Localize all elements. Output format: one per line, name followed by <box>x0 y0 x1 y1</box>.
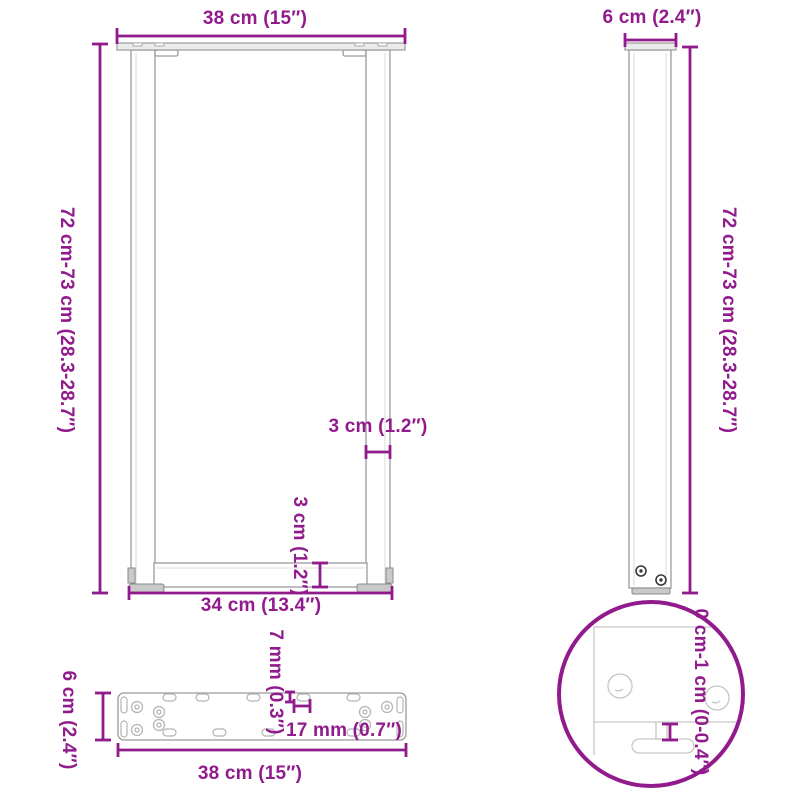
label-front-height: 72 cm-73 cm (28.3-28.7″) <box>55 207 77 433</box>
plate-notch <box>133 43 142 46</box>
plate-slot <box>397 697 403 713</box>
screw-center <box>639 569 642 572</box>
label-leg-thickness: 3 cm (1.2″) <box>329 416 428 438</box>
front-right-leg <box>366 50 390 587</box>
plate-slot <box>121 721 127 737</box>
plate-hole-center <box>157 723 161 727</box>
leg-clamp-detail <box>128 568 135 583</box>
dim-plate-depth <box>95 693 111 740</box>
front-left-foot <box>129 584 164 592</box>
plate-notch <box>355 43 364 46</box>
plate-hole-center <box>135 705 139 709</box>
label-plate-length: 38 cm (15″) <box>198 763 302 785</box>
leg-clamp-detail <box>386 568 393 583</box>
label-slot-width: 7 mm (0.3″) <box>264 629 286 734</box>
plate-slot <box>213 729 226 736</box>
side-top-plate <box>625 43 676 50</box>
dimension-diagram: 38 cm (15″) 6 cm (2.4″) 72 cm-73 cm (28.… <box>0 0 800 800</box>
plate-hole-center <box>385 705 389 709</box>
diagram-linework <box>0 0 800 800</box>
foot-detail-view <box>559 602 752 786</box>
label-crossbar-thickness: 3 cm (1.2″) <box>288 497 310 596</box>
dim-side-height <box>682 47 698 593</box>
plate-slot <box>163 729 176 736</box>
label-side-depth: 6 cm (2.4″) <box>603 7 702 29</box>
label-foot-adjust: 0 cm-1 cm (0-0.4″) <box>689 609 711 776</box>
plate-slot <box>163 694 176 701</box>
side-foot <box>632 588 670 594</box>
plate-slot <box>247 694 260 701</box>
plate-slot <box>347 694 360 701</box>
detail-magnifier-circle <box>559 602 743 786</box>
plate-hole-center <box>135 728 139 732</box>
mounting-tab <box>155 50 178 56</box>
front-crossbar <box>154 563 367 587</box>
label-front-bottom-width: 34 cm (13.4″) <box>201 595 322 617</box>
side-view-drawing <box>625 43 676 594</box>
label-plate-depth: 6 cm (2.4″) <box>57 671 79 770</box>
mounting-tab <box>343 50 366 56</box>
plate-hole-center <box>157 710 161 714</box>
plate-slot <box>121 697 127 713</box>
plate-hole-center <box>363 710 367 714</box>
plate-notch <box>378 43 387 46</box>
label-side-height: 72 cm-73 cm (28.3-28.7″) <box>717 207 739 433</box>
dim-front-top-width <box>117 28 405 44</box>
label-front-top-width: 38 cm (15″) <box>203 8 307 30</box>
screw-center <box>659 578 662 581</box>
plate-notch <box>155 43 164 46</box>
plate-slot <box>196 694 209 701</box>
plate-slot-measured <box>297 694 310 701</box>
dim-front-height <box>92 44 108 593</box>
front-left-leg <box>131 50 155 587</box>
label-slot-length: 17 mm (0.7″) <box>286 720 402 742</box>
front-view-drawing <box>117 43 405 592</box>
front-right-foot <box>357 584 392 592</box>
side-leg-column <box>629 50 671 588</box>
dim-plate-length <box>118 743 406 757</box>
